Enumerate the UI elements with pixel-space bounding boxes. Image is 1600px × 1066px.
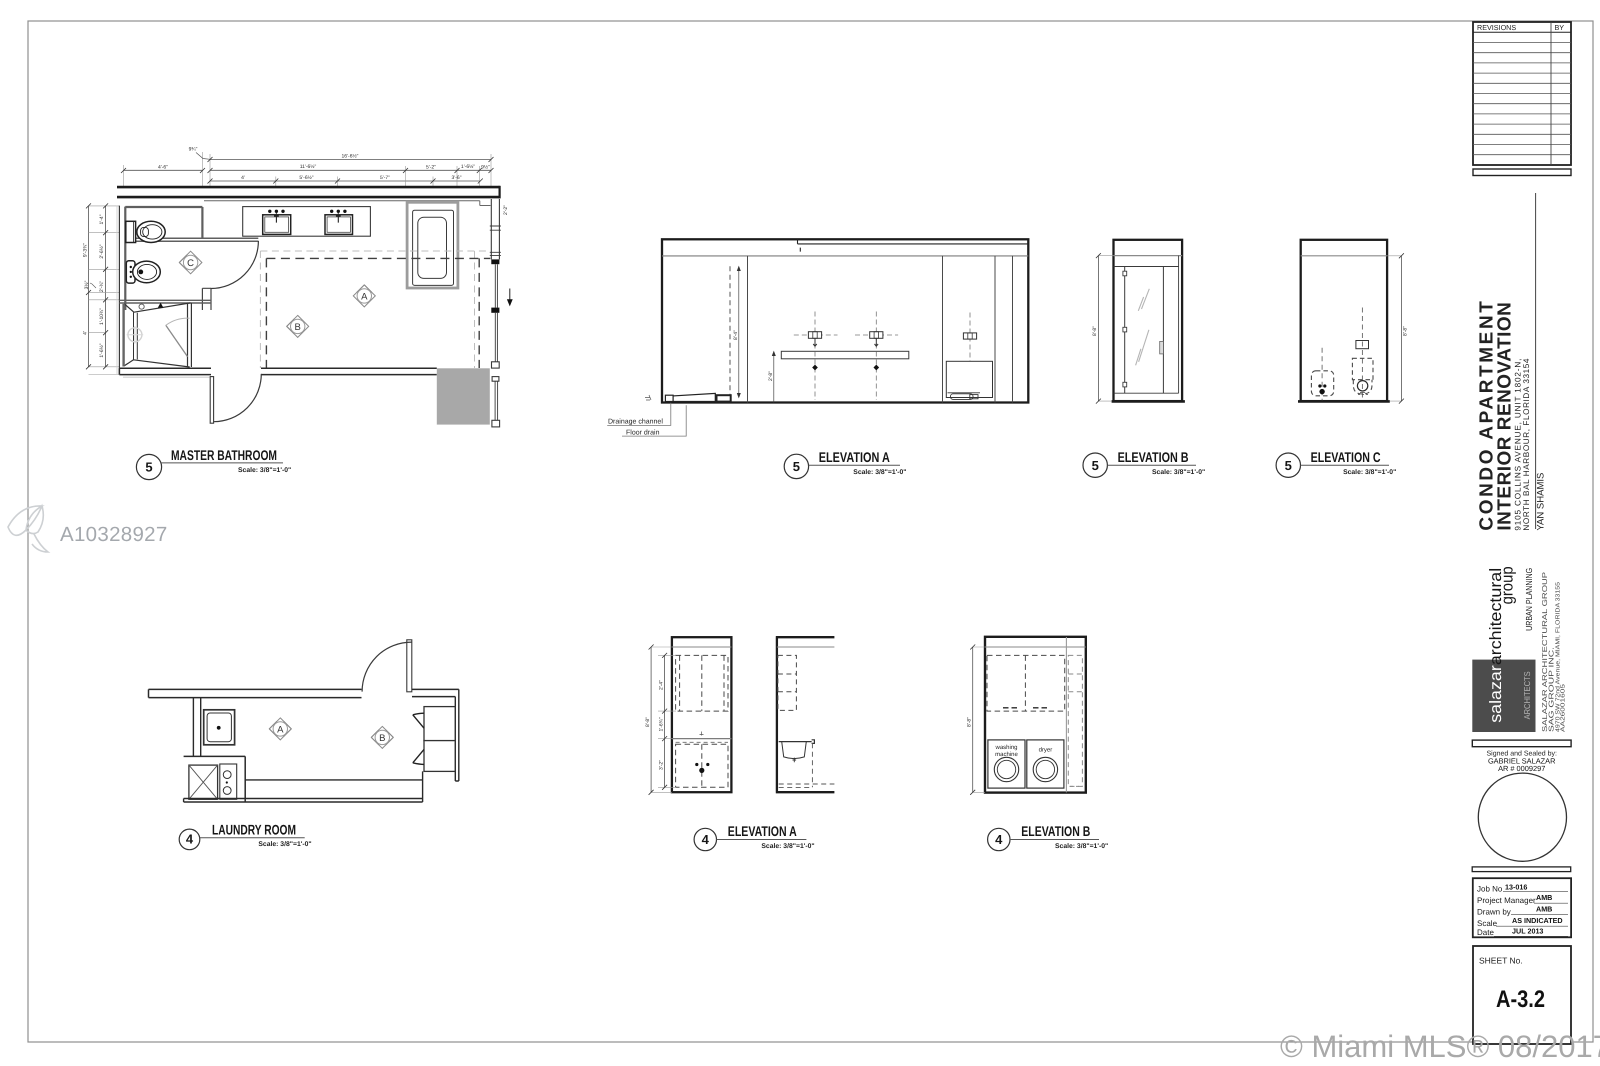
svg-text:B: B <box>379 733 385 744</box>
svg-text:SAG GROUP INC.: SAG GROUP INC. <box>1549 647 1556 732</box>
svg-text:4': 4' <box>83 331 89 335</box>
svg-text:Floor drain: Floor drain <box>626 428 660 436</box>
svg-text:Project Manager: Project Manager <box>1477 896 1536 905</box>
svg-text:JUL 2013: JUL 2013 <box>1512 927 1543 936</box>
svg-text:13-016: 13-016 <box>1505 883 1527 892</box>
svg-text:A: A <box>277 724 284 735</box>
svg-text:A: A <box>361 291 368 302</box>
svg-text:Drawn by: Drawn by <box>1477 908 1511 917</box>
svg-text:4: 4 <box>702 832 710 847</box>
svg-text:8'-8": 8'-8" <box>645 717 651 727</box>
svg-text:4: 4 <box>186 832 194 847</box>
svg-text:5: 5 <box>793 459 800 474</box>
svg-text:1'-6¾": 1'-6¾" <box>659 717 665 731</box>
svg-text:1'-6½": 1'-6½" <box>461 164 475 170</box>
svg-text:C: C <box>187 258 194 269</box>
svg-text:Scale: 3/8"=1'-0": Scale: 3/8"=1'-0" <box>853 469 906 476</box>
svg-text:AMB: AMB <box>1536 905 1552 914</box>
svg-text:Drainage channel: Drainage channel <box>608 418 663 426</box>
svg-text:NORTH BAL HARBOUR, FLORIDA 331: NORTH BAL HARBOUR, FLORIDA 33154 <box>1522 358 1531 530</box>
svg-text:2'-8": 2'-8" <box>768 371 774 381</box>
svg-text:3'-2": 3'-2" <box>659 760 665 770</box>
svg-text:Scale: 3/8"=1'-0": Scale: 3/8"=1'-0" <box>238 467 291 474</box>
svg-text:2'-2": 2'-2" <box>503 205 509 215</box>
svg-text:URBAN PLANNING: URBAN PLANNING <box>1524 568 1534 631</box>
svg-text:3½": 3½" <box>84 280 90 289</box>
svg-text:A10328927: A10328927 <box>60 523 168 546</box>
svg-text:2'-6½": 2'-6½" <box>99 244 105 258</box>
svg-text:8'-8": 8'-8" <box>1403 326 1409 336</box>
svg-text:4'-6": 4'-6" <box>158 164 168 170</box>
svg-text:ELEVATION A: ELEVATION A <box>819 449 890 465</box>
svg-text:AS INDICATED: AS INDICATED <box>1512 916 1563 925</box>
svg-text:Scale: 3/8"=1'-0": Scale: 3/8"=1'-0" <box>1055 843 1108 850</box>
svg-text:2'-4": 2'-4" <box>659 680 665 690</box>
svg-text:© Miami MLS® 08/2017: © Miami MLS® 08/2017 <box>1280 1029 1600 1064</box>
svg-text:4: 4 <box>995 832 1003 847</box>
svg-text:ELEVATION B: ELEVATION B <box>1118 449 1189 465</box>
svg-text:1'-10¾": 1'-10¾" <box>99 308 105 325</box>
svg-text:4': 4' <box>241 175 245 181</box>
svg-text:2'-¾": 2'-¾" <box>99 281 105 293</box>
svg-text:AR # 0009297: AR # 0009297 <box>1498 764 1545 773</box>
svg-text:SHEET No.: SHEET No. <box>1479 956 1523 966</box>
svg-text:AMB: AMB <box>1536 893 1552 902</box>
svg-text:16'-6½": 16'-6½" <box>342 154 359 160</box>
svg-text:1'-6½": 1'-6½" <box>99 343 105 357</box>
svg-text:INTERIOR RENOVATION: INTERIOR RENOVATION <box>1495 302 1516 531</box>
svg-text:MASTER BATHROOM: MASTER BATHROOM <box>171 447 277 463</box>
svg-text:5: 5 <box>1285 458 1292 473</box>
svg-text:AA26001605: AA26001605 <box>1560 683 1567 732</box>
svg-text:Scale: 3/8"=1'-0": Scale: 3/8"=1'-0" <box>258 841 311 848</box>
svg-text:5'-7": 5'-7" <box>380 175 390 181</box>
svg-text:9'-3¾": 9'-3¾" <box>83 243 89 257</box>
svg-text:dryer: dryer <box>1039 747 1053 754</box>
svg-text:Job No: Job No <box>1477 885 1503 894</box>
svg-text:REVISIONS: REVISIONS <box>1477 23 1516 32</box>
svg-text:Scale: 3/8"=1'-0": Scale: 3/8"=1'-0" <box>761 843 814 850</box>
svg-text:5: 5 <box>1092 458 1099 473</box>
svg-text:5'-6½": 5'-6½" <box>299 175 313 181</box>
svg-text:A-3.2: A-3.2 <box>1496 986 1545 1013</box>
svg-text:ARCHITECTS: ARCHITECTS <box>1522 671 1532 719</box>
svg-text:ELEVATION C: ELEVATION C <box>1311 449 1381 465</box>
svg-text:washing: washing <box>994 744 1017 751</box>
svg-text:8'-4": 8'-4" <box>733 330 739 340</box>
svg-text:Scale: 3/8"=1'-0": Scale: 3/8"=1'-0" <box>1152 469 1205 476</box>
svg-text:Scale: 3/8"=1'-0": Scale: 3/8"=1'-0" <box>1343 469 1396 476</box>
svg-text:YAN SHAMIS: YAN SHAMIS <box>1536 473 1547 531</box>
svg-text:ELEVATION A: ELEVATION A <box>728 823 797 839</box>
svg-text:5: 5 <box>145 460 152 475</box>
svg-text:BY: BY <box>1555 23 1565 32</box>
svg-text:11'-6½": 11'-6½" <box>300 164 317 170</box>
svg-text:machine: machine <box>995 751 1018 758</box>
svg-text:8'-8": 8'-8" <box>1092 326 1098 336</box>
svg-text:B: B <box>295 322 301 333</box>
svg-text:9½": 9½" <box>481 164 490 170</box>
svg-text:LAUNDRY ROOM: LAUNDRY ROOM <box>212 822 296 838</box>
svg-text:Date: Date <box>1477 928 1494 937</box>
svg-text:Scale: Scale <box>1477 919 1498 928</box>
svg-text:9¾": 9¾" <box>189 147 198 153</box>
svg-text:5'-2": 5'-2" <box>426 164 436 170</box>
svg-text:group: group <box>1499 566 1517 604</box>
svg-text:ELEVATION B: ELEVATION B <box>1021 823 1090 839</box>
svg-text:8'-8": 8'-8" <box>967 717 973 727</box>
svg-text:1'-4": 1'-4" <box>99 214 105 224</box>
svg-text:3'-6": 3'-6" <box>452 175 462 181</box>
